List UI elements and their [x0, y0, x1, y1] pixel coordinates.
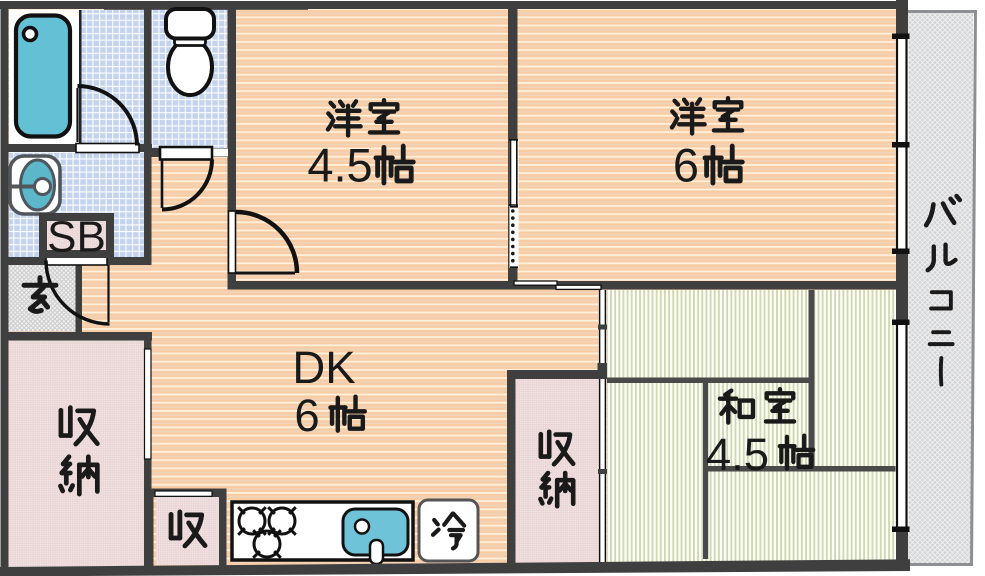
svg-text:6: 6 [294, 390, 319, 441]
svg-text:4.5: 4.5 [307, 139, 372, 192]
svg-text:DK: DK [292, 342, 355, 393]
svg-text:6: 6 [673, 139, 699, 192]
svg-text:SB: SB [47, 213, 106, 262]
svg-text:4.5: 4.5 [706, 429, 769, 480]
